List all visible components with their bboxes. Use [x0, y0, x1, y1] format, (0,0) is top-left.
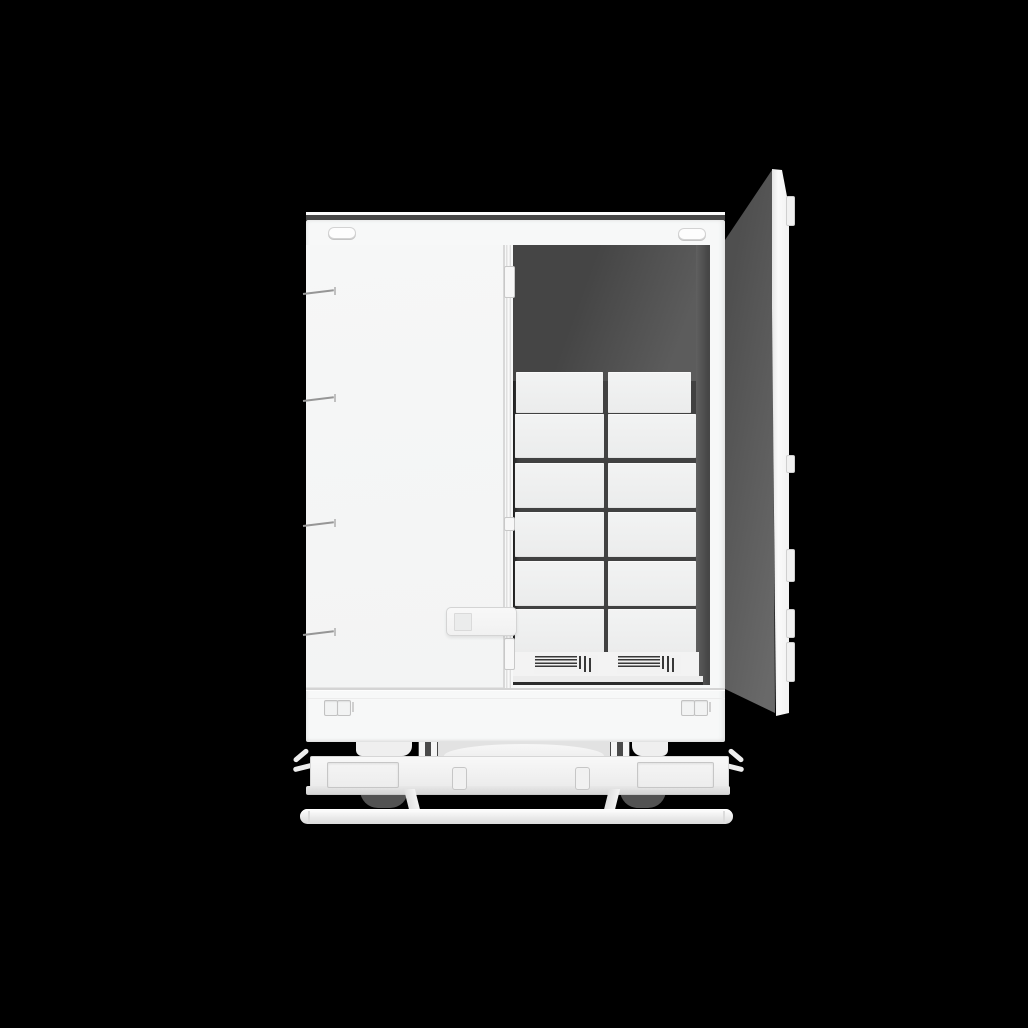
underride-guard-bar	[300, 809, 733, 824]
pallet-board-edge	[584, 656, 586, 672]
left-hinge	[303, 284, 337, 300]
hinge-strap-line	[303, 396, 334, 402]
lock-rod-guide	[504, 266, 515, 298]
cargo-box	[515, 512, 604, 557]
skirt-seam	[306, 698, 725, 699]
hinge-strap-line	[303, 630, 334, 636]
tail-light-right	[681, 700, 711, 716]
body-seam-highlight	[306, 690, 725, 691]
door-hinge-tab	[786, 549, 795, 582]
bumper-hook-right	[727, 748, 744, 763]
pallet-right	[617, 655, 681, 674]
marker-light-left	[328, 227, 356, 239]
step-plate-right	[637, 762, 714, 788]
bar-cap	[723, 811, 725, 822]
hinge-strap-line	[303, 521, 334, 527]
hinge-strap-line	[303, 289, 334, 295]
cargo-opening	[513, 245, 710, 685]
light-bracket	[352, 702, 354, 712]
cargo-box	[515, 414, 604, 458]
open-door-inner-panel	[720, 166, 778, 716]
scene	[0, 0, 1028, 1028]
pallet-board-edge	[589, 658, 591, 672]
door-hinge-tab	[786, 196, 795, 226]
bracket-post	[623, 742, 629, 756]
frame-bracket-right	[610, 742, 630, 756]
pallet-board-edge	[579, 656, 581, 669]
tail-light-left	[324, 700, 354, 716]
hinge-pin	[334, 628, 336, 636]
hinge-pin	[334, 287, 336, 295]
door-latch-handle	[446, 607, 517, 636]
left-hinge	[303, 391, 337, 407]
bracket-post	[419, 742, 425, 756]
tail-light-lens	[324, 700, 338, 716]
left-hinge	[303, 625, 337, 641]
pallet-boards	[618, 656, 660, 669]
axle-housing	[438, 742, 610, 756]
step-plate-left	[327, 762, 399, 788]
pallet-board-edge	[662, 656, 664, 669]
lock-rod-guide	[504, 638, 515, 670]
cargo-box	[608, 372, 691, 413]
fender-right	[632, 742, 668, 756]
bumper-hook-left	[292, 748, 309, 763]
cargo-box-stack	[513, 245, 710, 685]
tail-light-lens	[681, 700, 695, 716]
fender-left	[356, 742, 412, 756]
marker-light-right	[678, 228, 706, 240]
cargo-box	[608, 609, 696, 653]
bracket-post	[611, 742, 617, 756]
cargo-floor-edge	[513, 676, 703, 685]
light-bracket	[709, 702, 711, 712]
cargo-box	[515, 561, 604, 606]
lock-rod-guide	[504, 517, 515, 531]
pallet-board-edge	[672, 658, 674, 672]
hinge-pin	[334, 519, 336, 527]
cargo-box	[608, 561, 696, 606]
frame-bracket-left	[418, 742, 438, 756]
pallet-boards	[535, 656, 577, 669]
hinge-pin	[334, 394, 336, 402]
pallet-left	[534, 655, 598, 674]
door-hinge-tab	[786, 642, 795, 682]
cargo-box	[608, 512, 696, 557]
cargo-box	[608, 463, 696, 508]
left-hinge	[303, 516, 337, 532]
cargo-box	[515, 609, 604, 653]
pallet-band	[513, 652, 699, 676]
axle-arc	[444, 744, 604, 756]
cargo-box	[516, 372, 603, 413]
cargo-box	[608, 414, 696, 458]
cargo-box	[515, 463, 604, 508]
door-hinge-tab	[786, 455, 795, 473]
pallet-board-edge	[667, 656, 669, 672]
bracket-post	[431, 742, 437, 756]
bumper-slot-left	[452, 767, 467, 790]
tail-light-lens	[337, 700, 351, 716]
tail-light-lens	[694, 700, 708, 716]
bar-cap	[308, 811, 310, 822]
door-hinge-tab	[786, 609, 795, 638]
bumper-slot-right	[575, 767, 590, 790]
latch-keeper	[454, 613, 472, 631]
